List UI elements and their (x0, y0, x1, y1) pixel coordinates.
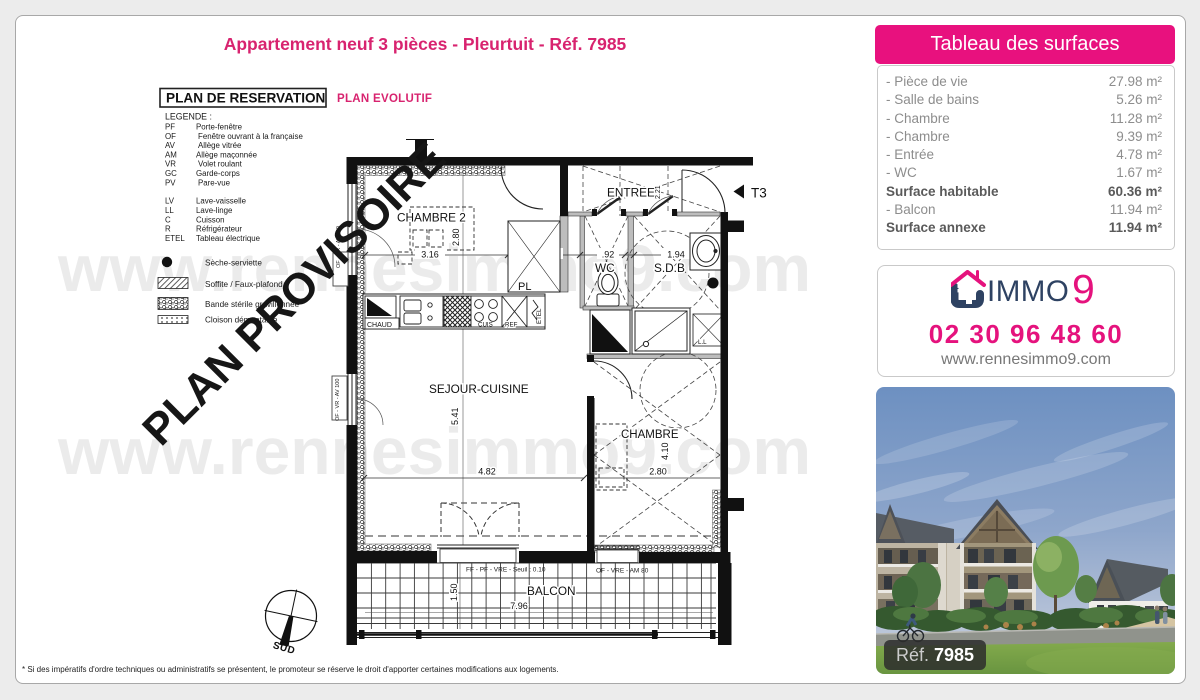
svg-text:2.80: 2.80 (451, 228, 461, 246)
svg-text:ETEL: ETEL (165, 234, 185, 243)
svg-text:IMMO: IMMO (987, 275, 1069, 308)
svg-text:T3: T3 (751, 186, 767, 201)
svg-text:Lave-linge: Lave-linge (196, 206, 233, 215)
svg-text:CHAMBRE: CHAMBRE (621, 429, 679, 441)
svg-text:PLAN DE RESERVATION: PLAN DE RESERVATION (166, 91, 325, 106)
svg-text:Volet roulant: Volet roulant (198, 160, 243, 169)
svg-text:LV: LV (165, 197, 175, 206)
svg-text:Allège maçonnée: Allège maçonnée (196, 150, 258, 159)
svg-text:.92: .92 (602, 250, 615, 260)
svg-text:7.96: 7.96 (510, 601, 528, 611)
svg-text:Réfrigérateur: Réfrigérateur (196, 225, 242, 234)
svg-text:4.82: 4.82 (478, 467, 496, 477)
svg-text:ETEL: ETEL (536, 308, 543, 324)
svg-text:REF: REF (505, 322, 518, 329)
svg-text:WC: WC (595, 261, 615, 275)
svg-text:5.41: 5.41 (450, 407, 460, 425)
svg-text:4.10: 4.10 (660, 442, 670, 460)
svg-text:PF: PF (165, 123, 175, 132)
svg-text:Allège vitrée: Allège vitrée (198, 141, 242, 150)
svg-text:CUIS: CUIS (478, 322, 493, 329)
svg-text:BALCON: BALCON (527, 584, 576, 598)
svg-text:FF - PF - VRE - Seuil : 0.10: FF - PF - VRE - Seuil : 0.10 (466, 567, 546, 574)
svg-text:2.80: 2.80 (649, 467, 667, 477)
svg-text:SUD: SUD (272, 640, 297, 657)
svg-text:R: R (165, 225, 171, 234)
svg-text:OF - VRE - AM 80: OF - VRE - AM 80 (596, 568, 649, 575)
svg-text:GC: GC (165, 169, 177, 178)
svg-text:OF: OF (165, 132, 176, 141)
svg-text:CHAUD: CHAUD (367, 322, 392, 329)
svg-text:ENTREE: ENTREE (607, 186, 655, 200)
svg-text:SEJOUR-CUISINE: SEJOUR-CUISINE (429, 382, 529, 396)
svg-text:1.94: 1.94 (667, 250, 685, 260)
svg-text:VR: VR (165, 160, 176, 169)
svg-text:LL: LL (165, 206, 174, 215)
svg-text:3.16: 3.16 (421, 250, 439, 260)
svg-text:Cuisson: Cuisson (196, 215, 225, 224)
svg-text:Fenêtre ouvrant à la française: Fenêtre ouvrant à la française (198, 132, 303, 141)
svg-text:PLAN EVOLUTIF: PLAN EVOLUTIF (337, 93, 432, 105)
svg-text:S.D.B: S.D.B (654, 261, 685, 275)
svg-text:Pare-vue: Pare-vue (198, 178, 231, 187)
svg-text:OF - VR - AV 100: OF - VR - AV 100 (335, 379, 341, 421)
svg-text:Porte-fenêtre: Porte-fenêtre (196, 123, 243, 132)
svg-text:L.L: L.L (698, 339, 707, 346)
svg-text:Sèche-serviette: Sèche-serviette (205, 259, 262, 268)
svg-text:Tableau électrique: Tableau électrique (196, 234, 261, 243)
svg-text:AM: AM (165, 150, 177, 159)
svg-text:PV: PV (165, 178, 176, 187)
svg-text:1.50: 1.50 (449, 583, 459, 601)
svg-text:Lave-vaisselle: Lave-vaisselle (196, 197, 247, 206)
svg-text:AV: AV (165, 141, 176, 150)
svg-text:Garde-corps: Garde-corps (196, 169, 240, 178)
svg-text:PL: PL (518, 281, 531, 293)
svg-text:2.21: 2.21 (655, 185, 662, 199)
svg-text:C: C (165, 215, 171, 224)
svg-text:9: 9 (1072, 270, 1095, 312)
svg-text:LEGENDE :: LEGENDE : (165, 112, 212, 122)
